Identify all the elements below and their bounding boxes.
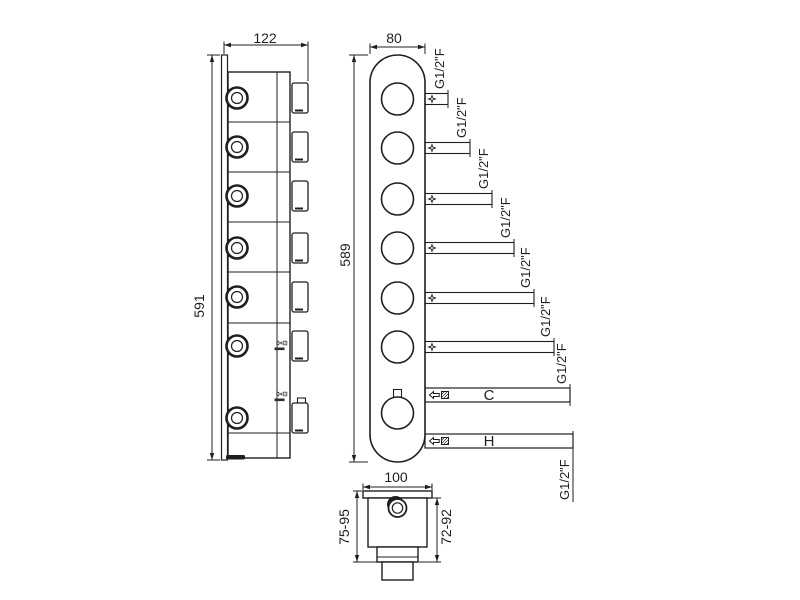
knob-opening — [382, 331, 414, 363]
outlet-thread-label: G1/2"F — [538, 296, 553, 337]
outlet-thread-label: G1/2"F — [476, 148, 491, 189]
outlet-thread-label: G1/2"F — [518, 247, 533, 288]
knob-opening — [382, 83, 414, 115]
outlet-thread-label: G1/2"F — [432, 48, 447, 89]
bottom-view: 100 75-95 72-92 — [336, 469, 454, 580]
outlet-port: G1/2"F — [425, 247, 534, 307]
side-port — [227, 88, 248, 109]
side-port — [227, 137, 248, 158]
side-height-label: 591 — [191, 294, 207, 318]
handle — [292, 282, 308, 312]
depth-left-label: 75-95 — [336, 509, 352, 545]
knob-opening — [382, 183, 414, 215]
handle — [292, 181, 308, 211]
outlet-thread-label: G1/2"F — [498, 197, 513, 238]
side-handles — [292, 83, 308, 433]
side-port — [227, 238, 248, 259]
thermostat-handle — [292, 398, 308, 433]
outlet-port: G1/2"F — [425, 296, 554, 356]
side-height-dimension: 591 — [191, 55, 220, 460]
front-view: 80 589 G1/2"F — [337, 30, 573, 502]
side-port — [227, 287, 248, 308]
hot-inlet: H G1/2"F — [425, 431, 573, 502]
front-width-dimension: 80 — [370, 30, 425, 54]
section-junction-box — [382, 562, 413, 580]
base-foot — [226, 455, 245, 460]
marker-caption — [275, 348, 285, 351]
outlet-ports: G1/2"F G1/2"F G1/2"F G1/2"F — [425, 48, 554, 356]
mounting-plate — [222, 55, 228, 460]
side-port — [227, 408, 248, 429]
outlet-thread-label: G1/2"F — [454, 97, 469, 138]
handle — [292, 83, 308, 113]
section-body-neck — [377, 547, 418, 562]
outlet-port: G1/2"F — [425, 148, 492, 208]
thermostat-opening — [382, 397, 414, 429]
handle — [292, 132, 308, 162]
cold-thread-label: G1/2"F — [554, 343, 569, 384]
bottom-width-label: 100 — [384, 469, 408, 485]
front-height-label: 589 — [337, 243, 353, 267]
side-port — [227, 336, 248, 357]
knob-opening — [382, 132, 414, 164]
cold-label: C — [484, 387, 495, 404]
outlet-port: G1/2"F — [425, 197, 514, 257]
side-width-label: 122 — [253, 30, 277, 46]
knob-opening — [382, 232, 414, 264]
hot-label: H — [484, 433, 495, 450]
front-width-label: 80 — [386, 30, 402, 46]
depth-right-label: 72-92 — [438, 509, 454, 545]
valve-dimension-drawing: 122 591 — [0, 0, 800, 600]
side-view: 122 591 — [191, 30, 308, 460]
handle — [292, 331, 308, 361]
hot-thread-label: G1/2"F — [557, 459, 572, 500]
marker-caption — [275, 399, 285, 402]
knob-opening — [382, 282, 414, 314]
drawing-canvas: 122 591 — [0, 0, 800, 600]
outlet-port: G1/2"F — [425, 48, 448, 108]
bottom-width-dimension: 100 — [363, 469, 432, 490]
front-height-dimension: 589 — [337, 55, 368, 462]
side-port — [227, 186, 248, 207]
section-port-inner — [392, 503, 402, 513]
handle — [292, 233, 308, 263]
